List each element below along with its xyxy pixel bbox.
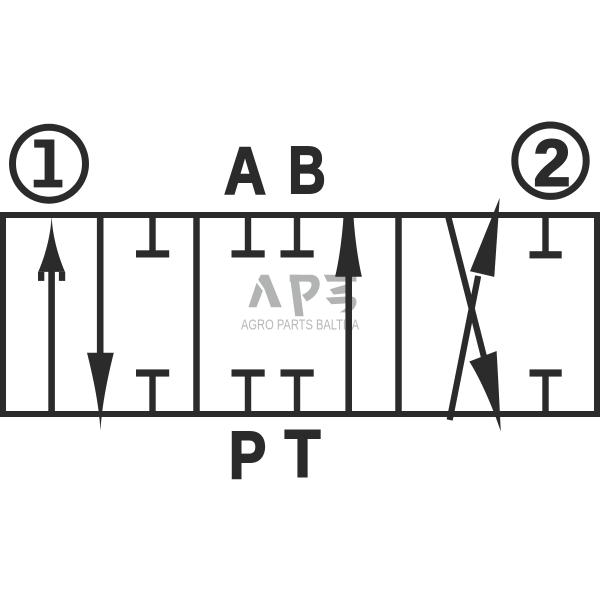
svg-text:B: B: [288, 133, 326, 208]
svg-text:2: 2: [534, 126, 571, 200]
svg-text:T: T: [285, 417, 321, 491]
svg-text:A: A: [224, 134, 266, 209]
svg-text:AGRO PARTS BALTIJA: AGRO PARTS BALTIJA: [241, 317, 359, 333]
svg-text:P: P: [229, 418, 266, 493]
